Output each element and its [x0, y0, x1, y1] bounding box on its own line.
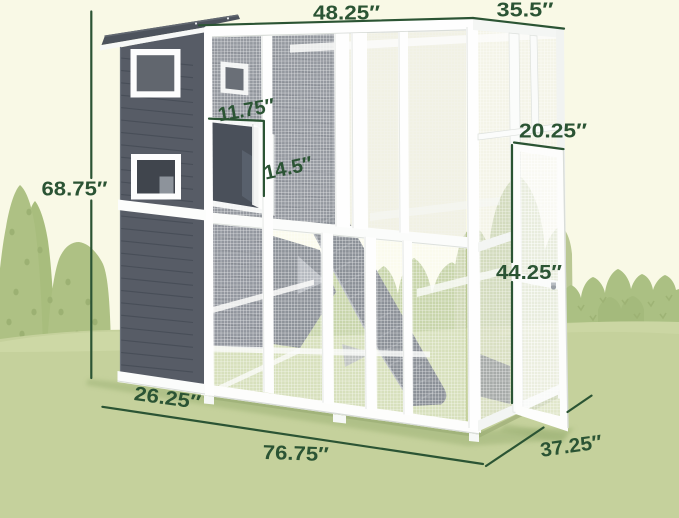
svg-text:35.5″: 35.5″ [497, 0, 554, 22]
svg-text:20.25″: 20.25″ [519, 121, 587, 143]
svg-text:44.25″: 44.25″ [496, 262, 562, 284]
svg-text:48.25″: 48.25″ [313, 3, 380, 25]
svg-text:76.75″: 76.75″ [262, 442, 329, 466]
svg-text:68.75″: 68.75″ [42, 179, 108, 201]
